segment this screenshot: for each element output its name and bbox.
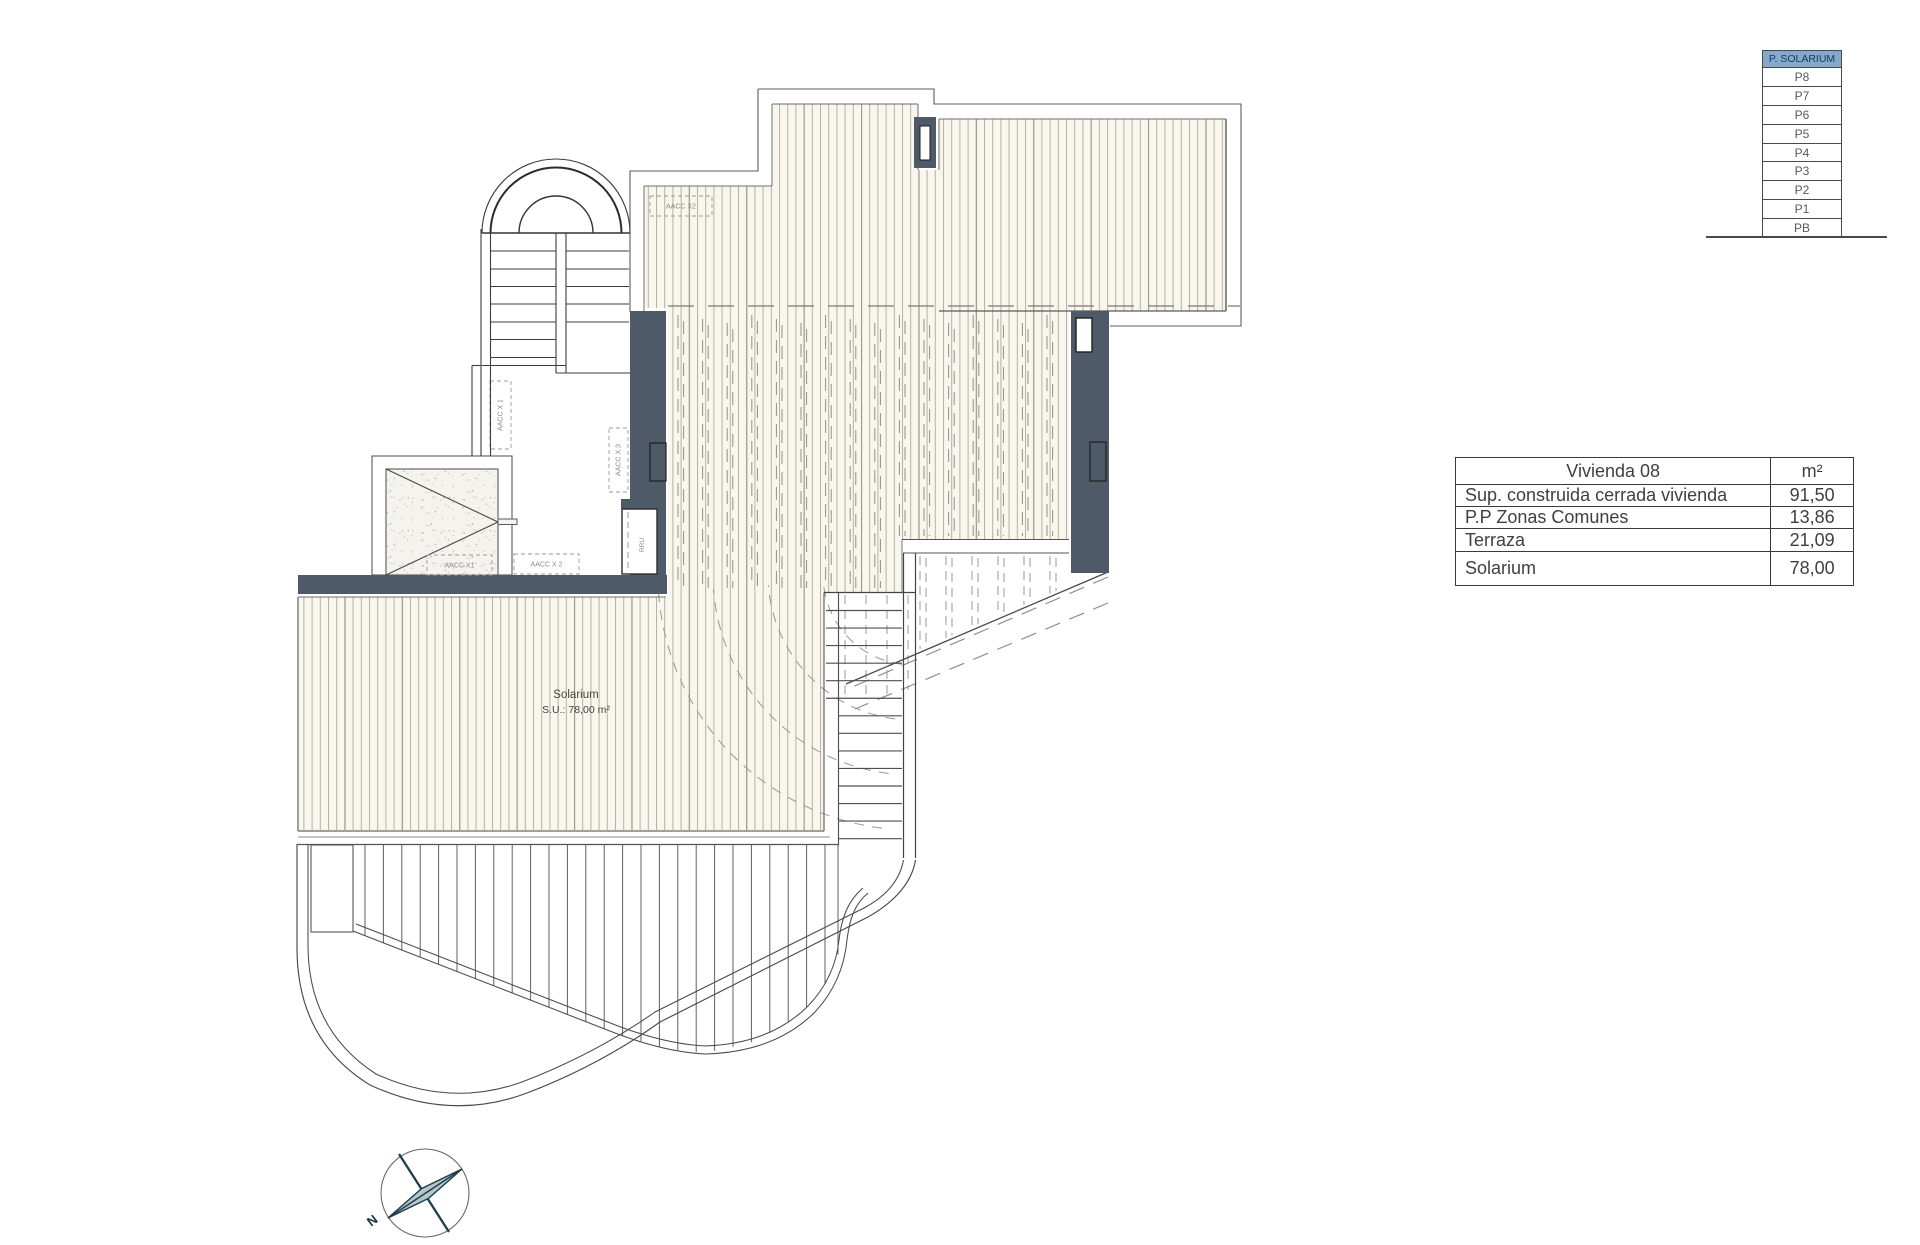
- svg-text:S.U.: 78,00 m²: S.U.: 78,00 m²: [542, 704, 610, 716]
- svg-text:Solarium: Solarium: [553, 689, 598, 701]
- svg-text:AACC X1: AACC X1: [445, 563, 475, 570]
- svg-text:AACC X 1: AACC X 1: [498, 399, 505, 431]
- svg-text:AACC X 3: AACC X 3: [616, 444, 623, 476]
- svg-text:N: N: [364, 1212, 381, 1230]
- svg-text:AACC X 2: AACC X 2: [531, 562, 563, 569]
- svg-text:AACC X2: AACC X2: [666, 204, 696, 211]
- svg-text:RRU: RRU: [639, 538, 646, 552]
